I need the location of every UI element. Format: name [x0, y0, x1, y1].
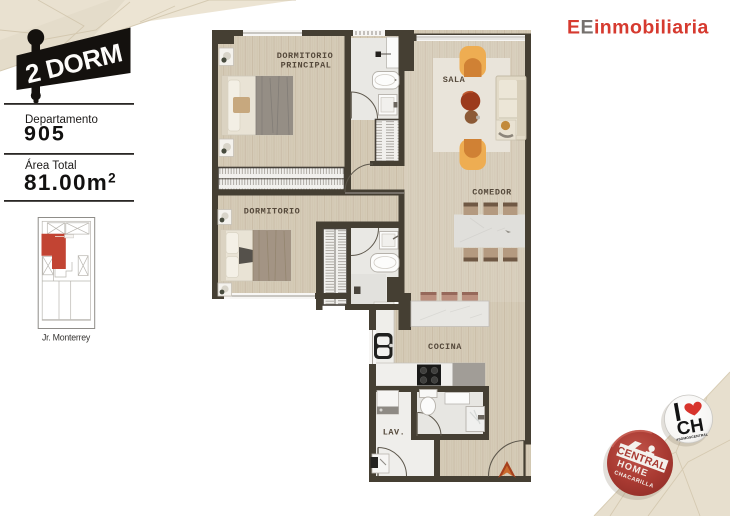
svg-text:SALA: SALA: [443, 75, 466, 85]
svg-text:905: 905: [24, 122, 66, 146]
svg-text:COCINA: COCINA: [428, 342, 462, 352]
svg-text:Jr. Monterrey: Jr. Monterrey: [42, 333, 91, 343]
svg-text:PRINCIPAL: PRINCIPAL: [281, 61, 332, 71]
svg-text:EEinmobiliaria: EEinmobiliaria: [567, 17, 709, 39]
svg-text:LAV.: LAV.: [383, 428, 406, 438]
svg-text:COMEDOR: COMEDOR: [472, 188, 512, 198]
svg-text:DORMITORIO: DORMITORIO: [244, 207, 301, 217]
svg-text:81.00m2: 81.00m2: [24, 170, 117, 195]
svg-text:DORMITORIO: DORMITORIO: [277, 51, 334, 61]
